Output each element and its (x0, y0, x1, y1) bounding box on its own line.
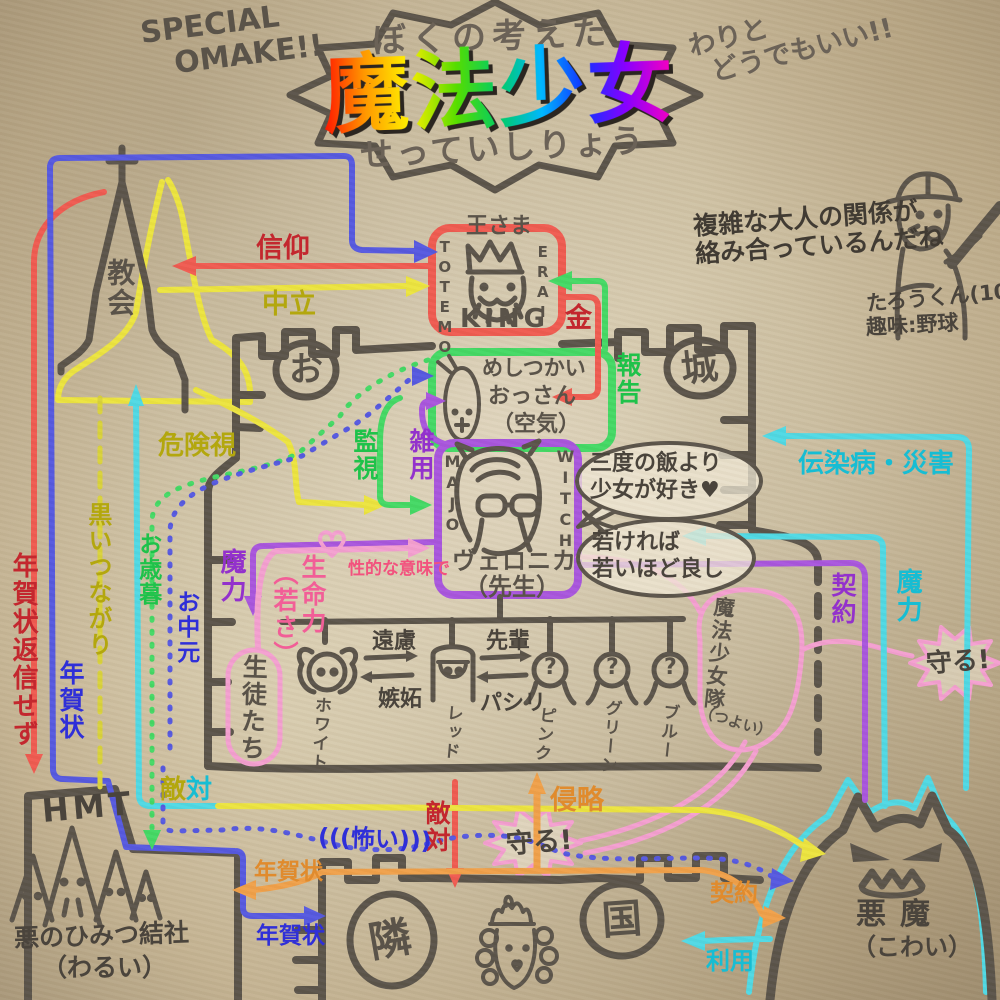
bubble1-line1: 三度の飯より (590, 452, 722, 477)
edge-faith: 信仰 (256, 234, 310, 264)
church-name: 教会 (104, 258, 135, 318)
edge-hostility-left-char1: 敵 (160, 775, 186, 805)
neighbor-char2: 国 (600, 897, 643, 944)
edge-oseibo: お歳暮 (134, 532, 160, 607)
edge-mana-cyan: 魔力 (892, 568, 921, 624)
edge-shitto: 嫉妬 (378, 688, 422, 713)
edge-darktie: 黒いつながり (84, 502, 111, 658)
edge-contract-purple: 契約 (828, 572, 856, 626)
commentator-hobby: 趣味:野球 (865, 312, 959, 340)
edge-scary: (((怖い))) (318, 824, 433, 855)
edge-chores: 雑用 (406, 428, 434, 482)
edge-senpai: 先輩 (486, 630, 530, 655)
question-mark-pink: ? (544, 656, 557, 681)
edge-contract-orange: 契約 (710, 880, 758, 907)
neighbor-castle (296, 856, 760, 1000)
edge-lifeforce: 生命力 (298, 554, 326, 635)
student-name-white: ホワイト (306, 695, 330, 772)
king-title-top: 王さま (466, 215, 532, 240)
question-mark-green: ? (606, 656, 619, 681)
edge-enryo: 遠慮 (372, 630, 416, 655)
edge-protect-right: 守る! (925, 646, 991, 679)
edge-invade: 侵略 (550, 786, 604, 816)
hmt-caption2: （わるい） (42, 954, 167, 982)
servant-line3: （空気） (492, 413, 580, 438)
witch-name: ヴェロニカ (452, 548, 577, 575)
demon-figure (749, 778, 992, 1000)
edge-plague: 伝染病・災害 (798, 450, 954, 479)
witch-label-left: MAJO (443, 452, 461, 536)
servant-line2: おっさん (488, 385, 576, 410)
bubble1-line2: 少女が好き♥ (590, 479, 720, 504)
student-name-red: レッド (439, 703, 463, 761)
castle-char-o: お (289, 351, 323, 389)
edge-use: 利用 (706, 948, 754, 975)
witch-title: （先生） (464, 574, 560, 601)
neighbor-char1: 隣 (365, 913, 415, 967)
king-label-left: TOTEMO (436, 238, 453, 358)
demon-note: （こわい） (852, 934, 972, 961)
edge-hostility-left-char2: 対 (186, 775, 212, 805)
castle-char-shiro: 城 (679, 345, 720, 390)
servant-line1: めしつかい (482, 357, 586, 381)
edge-protect-bottom: 守る! (505, 826, 573, 861)
edge-nengajo-orange: 年賀状 (254, 860, 323, 886)
students-group-label: 生徒たち (236, 654, 268, 763)
edge-pashiri: パシリ (480, 692, 546, 717)
edge-nengajo-blue: 年賀状 (256, 924, 325, 950)
edge-danger: 危険視 (158, 432, 236, 461)
edge-surveil: 監視 (350, 428, 378, 482)
edge-report: 報告 (613, 352, 641, 406)
edge-lifeforce-note: （若さ） (270, 560, 298, 668)
bubble2-line1: 若ければ (592, 531, 680, 556)
demon-name: 悪魔 (856, 898, 944, 932)
magical-girl-relationship-chart: SPECIAL OMAKE!! ぼくの考えた 魔法少女 せっていしりょう わりと… (0, 0, 1000, 1000)
witch-label-right: WITCH (556, 447, 574, 552)
edge-neutral: 中立 (262, 290, 316, 320)
edge-mana-purple: 魔力 (216, 548, 245, 604)
edge-noreply: 年賀状返信せず (8, 552, 37, 748)
bubble2-line2: 若いほど良し (592, 558, 724, 583)
edge-nengajo-left: 年賀状 (56, 660, 84, 741)
question-mark-blue: ? (664, 656, 677, 681)
king-label-bottom: KING (460, 305, 549, 334)
edge-money: 金 (565, 304, 592, 334)
edge-ochugen: お中元 (172, 590, 198, 665)
edge-sexual: 性的な意味で (348, 560, 450, 579)
edge-hostility-left: 敵対 (160, 776, 212, 805)
